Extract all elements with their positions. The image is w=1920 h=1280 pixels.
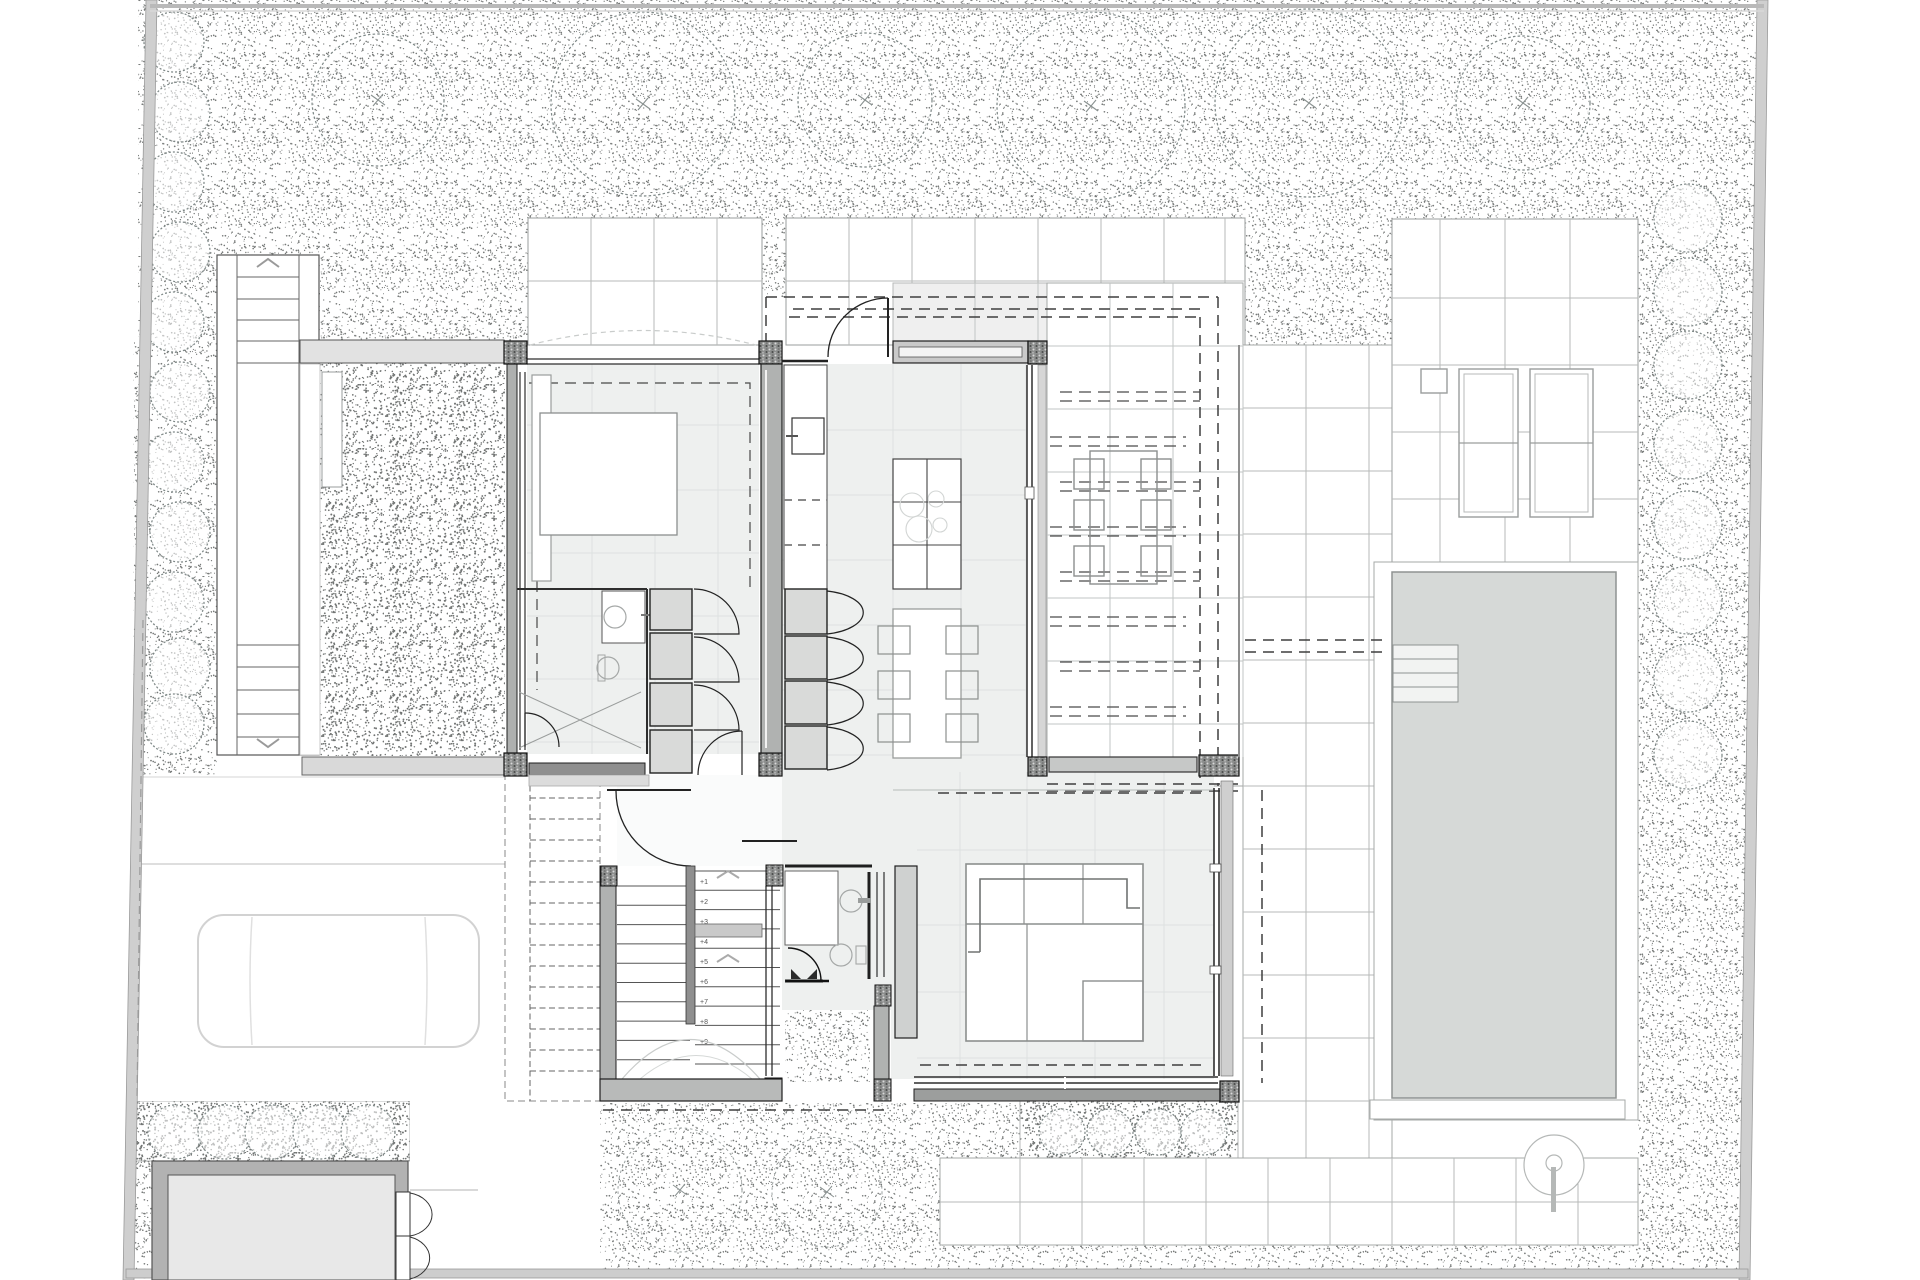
svg-text:+3: +3 <box>700 919 708 926</box>
svg-text:+6: +6 <box>700 979 708 986</box>
svg-text:+1: +1 <box>700 879 708 886</box>
svg-text:+7: +7 <box>700 999 708 1006</box>
svg-text:+4: +4 <box>700 939 708 946</box>
svg-text:+8: +8 <box>700 1019 708 1026</box>
svg-text:+2: +2 <box>700 899 708 906</box>
svg-text:+5: +5 <box>700 959 708 966</box>
